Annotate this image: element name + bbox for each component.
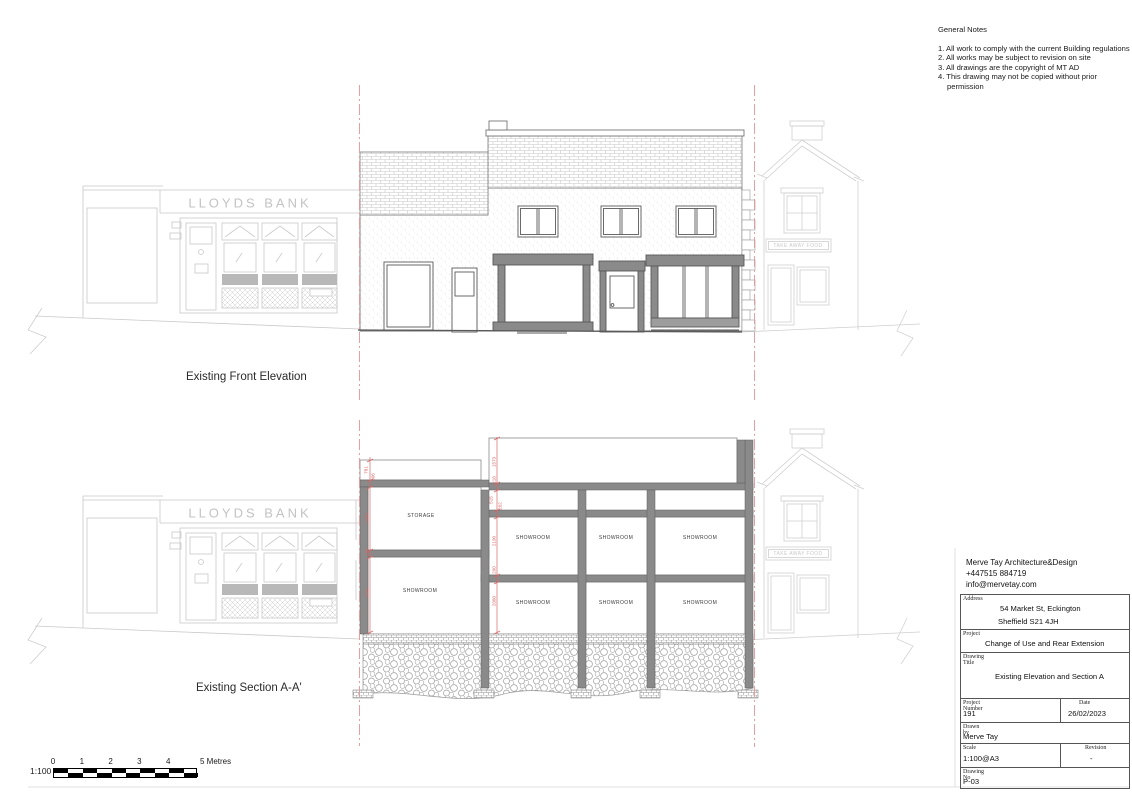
dimension-value: 2080 (492, 596, 497, 606)
dimension-value: 218 (492, 476, 497, 484)
scale-tick: 4 (166, 757, 170, 766)
scale-value: 1:100@A3 (963, 754, 999, 763)
general-note-item: 1. All work to comply with the current B… (938, 44, 1130, 54)
general-note-item: 4. This drawing may not be copied withou… (938, 72, 1130, 91)
drawing-title-value: Existing Elevation and Section A (995, 672, 1104, 681)
project-label: Project (963, 631, 980, 637)
address-line2: Sheffield S21 4JH (998, 617, 1059, 626)
general-notes-title: General Notes (938, 25, 1130, 35)
firm-email: info@mervetay.com (966, 580, 1037, 589)
lloyds-bank-sign-section: LLOYDS BANK (188, 506, 311, 521)
drawing-sheet: LLOYDS BANK TAKE AWAY FOOD LLOYDS BANK T… (0, 0, 1132, 800)
dimension-value: 2332 (365, 588, 370, 598)
drawn-by-value: Merve Tay (963, 732, 998, 741)
section-lloyds-context (28, 496, 360, 664)
firm-phone: +447515 884719 (966, 569, 1026, 578)
dimension-value: 202 (498, 502, 503, 510)
drawing-no-value: P-03 (963, 777, 979, 786)
revision-value: - (1090, 754, 1093, 763)
scale-tick: 1 (80, 757, 84, 766)
room-label-showroom: SHOWROOM (599, 535, 633, 541)
room-label-showroom: SHOWROOM (683, 600, 717, 606)
room-label-showroom: SHOWROOM (683, 535, 717, 541)
elevation-lloyds-context (28, 186, 360, 354)
room-label-storage: STORAGE (407, 513, 434, 519)
address-line1: 54 Market St, Eckington (1000, 604, 1081, 613)
room-label-showroom: SHOWROOM (403, 588, 437, 594)
scale-tick: 2 (108, 757, 112, 766)
section-subject-building (353, 438, 758, 699)
dimension-value: 2330 (365, 513, 370, 523)
dimension-value: 515 (489, 496, 494, 504)
takeaway-sign-elevation: TAKE AWAY FOOD (773, 243, 822, 249)
dimension-value: 306 (371, 473, 376, 481)
scale-tick: 0 (51, 757, 55, 766)
revision-label: Revision (1085, 745, 1106, 751)
elevation-subject-building (358, 121, 755, 334)
dimension-value: 200 (492, 566, 497, 574)
general-note-item: 3. All drawings are the copyright of MT … (938, 63, 1130, 73)
firm-name: Merve Tay Architecture&Design (966, 558, 1077, 567)
date-value: 26/02/2023 (1068, 709, 1106, 718)
project-value: Change of Use and Rear Extension (985, 639, 1104, 648)
dimension-value: 260 (365, 548, 370, 556)
drawing-linework (0, 0, 1132, 800)
section-takeaway-context (742, 429, 920, 664)
takeaway-sign-section: TAKE AWAY FOOD (773, 551, 822, 557)
room-label-showroom: SHOWROOM (516, 600, 550, 606)
section-title: Existing Section A-A' (196, 682, 302, 694)
scale-tick: 3 (137, 757, 141, 766)
scale-bar (53, 768, 197, 778)
date-label: Date (1079, 700, 1090, 706)
scale-end-label: 5 Metres (200, 757, 231, 766)
elevation-title: Existing Front Elevation (186, 371, 307, 383)
drawing-title-label: Drawing Title (963, 654, 984, 666)
elevation-first-floor-windows (518, 206, 716, 237)
dimension-value: 1573 (492, 457, 497, 467)
scale-label: Scale (963, 745, 976, 751)
general-note-item: 2. All works may be subject to revision … (938, 53, 1130, 63)
scale-ratio: 1:100 (30, 766, 51, 776)
address-label: Address (963, 596, 983, 602)
general-notes: General Notes 1. All work to comply with… (938, 25, 1130, 91)
lloyds-bank-sign-elevation: LLOYDS BANK (188, 196, 311, 211)
project-number-value: 191 (963, 709, 976, 718)
room-label-showroom: SHOWROOM (516, 535, 550, 541)
elevation-takeaway-context (742, 121, 920, 356)
dimension-value: 781 (364, 466, 369, 474)
room-label-showroom: SHOWROOM (599, 600, 633, 606)
dimension-value: 2190 (492, 536, 497, 546)
